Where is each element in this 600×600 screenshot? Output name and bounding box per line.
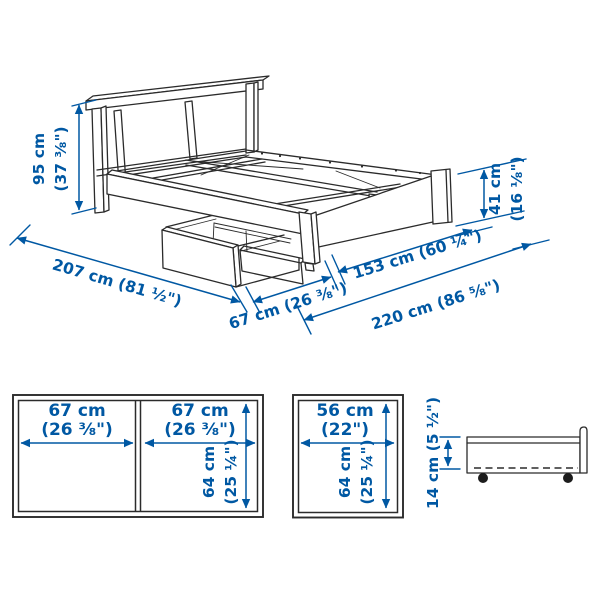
diagram-canvas: 95 cm (37 ⅜") 207 cm (81 ½") 67 cm (26 ⅜… [0, 0, 600, 600]
svg-text:67 cm (26 ⅜"): 67 cm (26 ⅜") [227, 279, 350, 333]
caster-wheel [478, 473, 488, 483]
footboard-far-post [431, 169, 452, 224]
right-width-in: (26 ⅜") [164, 420, 236, 440]
box-rail-hook [580, 427, 587, 473]
small-depth-label: 64 cm (25 ¼") [336, 439, 376, 504]
svg-text:14 cm (5 ½"): 14 cm (5 ½") [424, 397, 442, 509]
boxes-depth-label: 64 cm (25 ¼") [200, 439, 240, 504]
svg-text:(25 ¼"): (25 ¼") [358, 439, 376, 504]
box-front-view-small: 56 cm (22") 64 cm (25 ¼") [293, 395, 403, 518]
svg-text:(37 ⅜"): (37 ⅜") [52, 126, 70, 191]
svg-text:(16 ⅛"): (16 ⅛") [508, 156, 526, 221]
svg-text:95 cm: 95 cm [30, 133, 48, 185]
footboard-height-label: 41 cm (16 ⅛") [486, 156, 526, 221]
small-width-in: (22") [321, 420, 369, 440]
right-width-cm: 67 cm [171, 401, 228, 421]
boxes-front-view: 67 cm (26 ⅜") 67 cm (26 ⅜") 64 cm (25 ¼"… [13, 395, 263, 517]
box-height-label: 14 cm (5 ½") [424, 397, 442, 509]
svg-text:64 cm: 64 cm [336, 446, 354, 498]
svg-text:(25 ¼"): (25 ¼") [222, 439, 240, 504]
caster-wheel [563, 473, 573, 483]
left-width-in: (26 ⅜") [41, 420, 113, 440]
svg-text:41 cm: 41 cm [486, 163, 504, 215]
svg-text:64 cm: 64 cm [200, 446, 218, 498]
box-side-view: 14 cm (5 ½") [424, 397, 587, 509]
small-width-cm: 56 cm [316, 401, 373, 421]
product-dimension-diagram: 95 cm (37 ⅜") 207 cm (81 ½") 67 cm (26 ⅜… [0, 0, 600, 600]
svg-text:220 cm (86 ⅝"): 220 cm (86 ⅝") [369, 276, 502, 333]
total-width-label: 220 cm (86 ⅝") [369, 276, 502, 333]
box-pullout-label: 67 cm (26 ⅜") [227, 279, 350, 333]
bed-height-label: 95 cm (37 ⅜") [30, 126, 70, 191]
left-width-cm: 67 cm [48, 401, 105, 421]
